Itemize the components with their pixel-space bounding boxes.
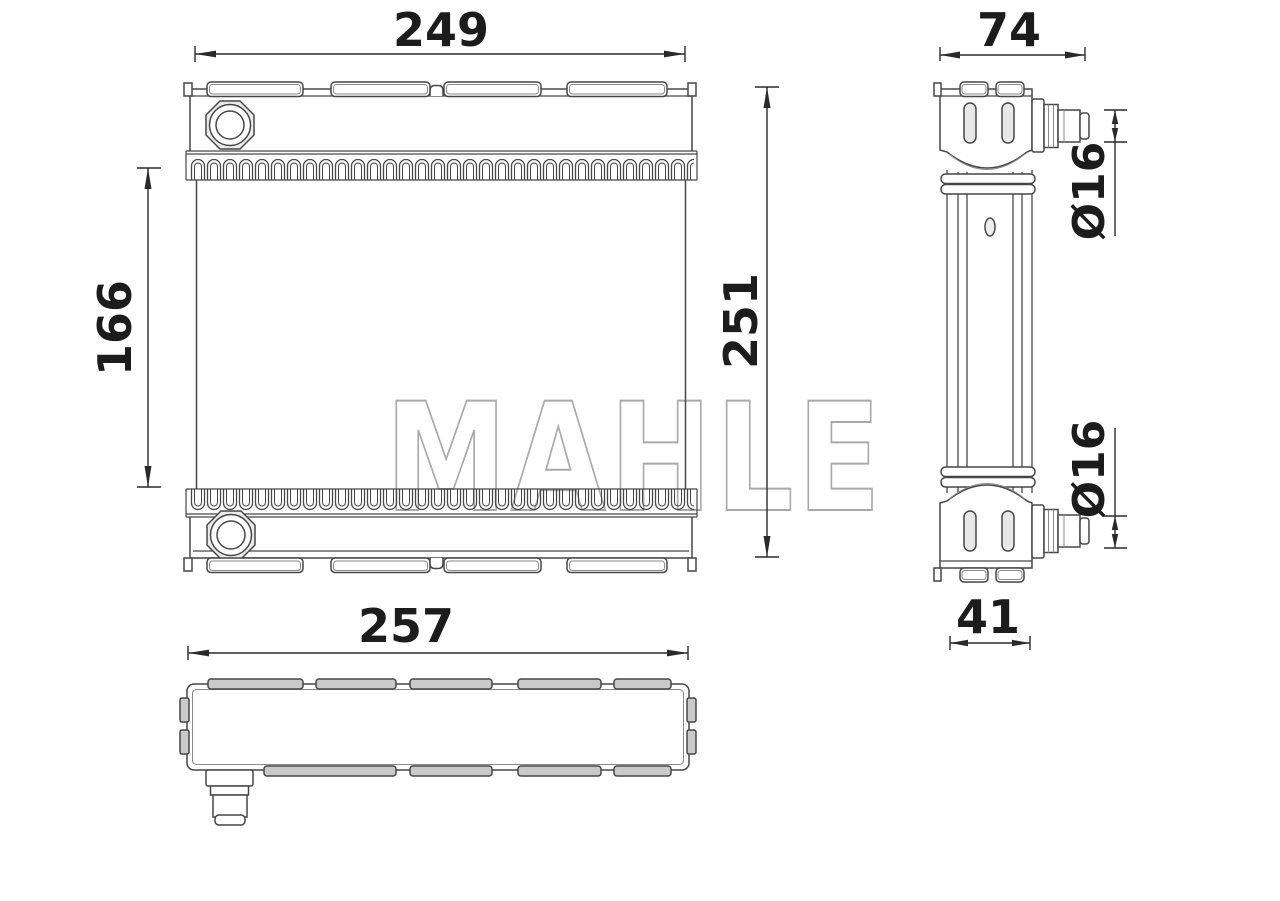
front-top-right-corner-hook	[688, 83, 696, 96]
dim-side-tank-depth: 41	[950, 590, 1030, 650]
front-bottom-fin-strip	[186, 489, 697, 517]
dim-bottom-width: 257	[188, 599, 688, 660]
dim-label-side-port-bottom: Ø16	[1064, 420, 1115, 519]
front-top-fins	[190, 154, 694, 180]
arrow-up	[145, 168, 152, 189]
bottom-body	[187, 684, 689, 770]
front-bottom-mounting-tabs	[207, 558, 667, 573]
dim-label-front-width: 249	[393, 3, 489, 57]
mahle-watermark: MAHLE	[385, 372, 884, 546]
radiator-drawing: MAHLE	[0, 0, 1280, 901]
arrow-down	[1112, 534, 1118, 548]
front-top-left-corner-hook	[184, 83, 192, 96]
dim-label-side-tank-depth: 41	[956, 590, 1020, 644]
arrow-down	[145, 466, 152, 487]
front-top-center-nub	[430, 86, 443, 97]
dim-label-front-height: 251	[714, 273, 768, 369]
arrow-right	[1065, 52, 1085, 59]
front-bottom-left-corner-hook	[184, 558, 192, 571]
front-bottom-right-corner-hook	[688, 558, 696, 571]
arrow-up	[764, 87, 771, 108]
bottom-top-tabs	[208, 679, 671, 689]
dim-label-bottom-width: 257	[358, 599, 454, 653]
dim-label-side-width: 74	[977, 3, 1041, 57]
arrow-right	[664, 51, 685, 58]
front-top-mounting-tabs	[207, 82, 667, 97]
technical-drawing-page: MAHLE	[0, 0, 1280, 901]
arrow-left	[188, 650, 209, 657]
arrow-down	[764, 536, 771, 557]
side-bottom-corner-hook	[934, 568, 941, 581]
arrow-right	[667, 650, 688, 657]
dim-front-width: 249	[195, 3, 685, 62]
bottom-view: 257	[180, 599, 696, 825]
arrow-up	[1112, 110, 1118, 124]
side-drain-hole	[985, 218, 995, 236]
front-bottom-fins	[190, 489, 694, 515]
dim-label-side-port-top: Ø16	[1064, 142, 1115, 241]
dim-side-width: 74	[940, 3, 1085, 61]
dim-front-core-height: 166	[88, 168, 161, 487]
front-top-fin-strip	[186, 151, 697, 180]
bottom-pipe	[206, 770, 253, 825]
side-view: 74 Ø16 Ø16 41	[934, 3, 1127, 650]
side-top-corner-hook	[934, 83, 941, 96]
arrow-left	[195, 51, 216, 58]
front-top-tank	[184, 82, 696, 151]
front-bottom-port	[207, 511, 255, 559]
arrow-left	[940, 52, 960, 59]
arrow-down	[1112, 128, 1118, 142]
side-bottom-mounting-tabs	[960, 568, 1024, 582]
front-bottom-center-nub	[430, 558, 443, 569]
front-top-port	[206, 101, 254, 149]
front-top-tank-outline	[190, 89, 692, 151]
dim-label-front-core-height: 166	[88, 280, 142, 376]
